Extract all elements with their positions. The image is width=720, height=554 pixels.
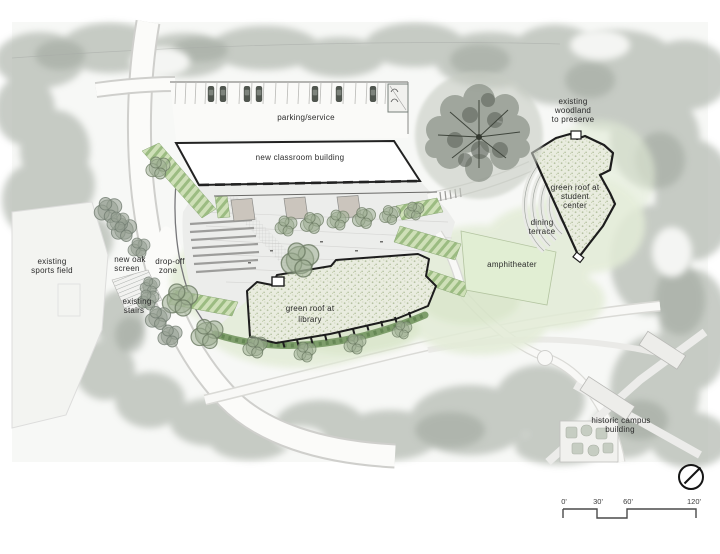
car-icon <box>256 86 262 102</box>
label-student-center: green roof at <box>551 183 600 192</box>
svg-text:library: library <box>298 315 322 324</box>
parking-lot <box>170 82 408 140</box>
scale-tick-30: 30' <box>593 497 603 506</box>
scale-bar: 0' 30' 60' 120' <box>561 497 701 518</box>
car-icon <box>208 86 214 102</box>
svg-text:student: student <box>561 192 590 201</box>
scale-tick-0: 0' <box>561 497 567 506</box>
svg-text:screen: screen <box>114 264 140 273</box>
site-plan-drawing: parking/service new classroom building e… <box>0 0 720 554</box>
label-sports-field: existing <box>37 257 66 266</box>
svg-text:stairs: stairs <box>124 306 145 315</box>
label-classroom: new classroom building <box>256 153 345 162</box>
svg-text:to preserve: to preserve <box>552 115 595 124</box>
label-historic: historic campus <box>591 416 650 425</box>
svg-text:zone: zone <box>159 266 178 275</box>
label-amphitheater: amphitheater <box>487 260 537 269</box>
label-drop-off: drop-off <box>155 257 185 266</box>
scale-tick-60: 60' <box>623 497 633 506</box>
service-yard <box>388 84 408 112</box>
label-library: green roof at <box>286 304 335 313</box>
scale-tick-120: 120' <box>687 497 702 506</box>
svg-text:sports field: sports field <box>31 266 73 275</box>
existing-oak-tree <box>415 71 543 199</box>
label-woodland: existing <box>558 97 587 106</box>
car-icon <box>220 86 226 102</box>
car-icon <box>244 86 250 102</box>
label-parking: parking/service <box>277 113 335 122</box>
north-arrow-icon <box>679 465 703 489</box>
car-icon <box>370 86 376 102</box>
label-oak-screen: new oak <box>114 255 146 264</box>
car-icon <box>336 86 342 102</box>
svg-text:terrace: terrace <box>529 227 556 236</box>
student-center-notch <box>571 131 581 139</box>
label-stairs: existing <box>122 297 151 306</box>
svg-text:woodland: woodland <box>554 106 591 115</box>
label-dining-terrace: dining <box>531 218 554 227</box>
svg-text:building: building <box>605 425 635 434</box>
svg-text:center: center <box>563 201 587 210</box>
site-plan-sheet: parking/service new classroom building e… <box>0 0 720 554</box>
car-icon <box>312 86 318 102</box>
library-entry-notch <box>272 277 284 286</box>
